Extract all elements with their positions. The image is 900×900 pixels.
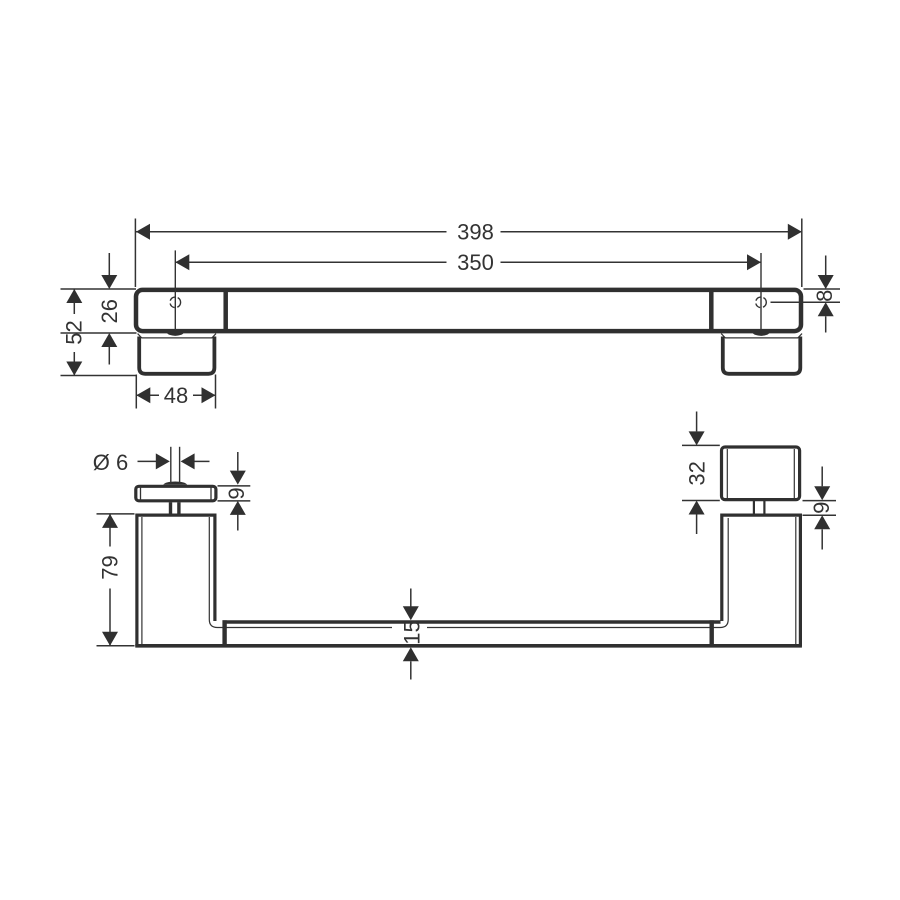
- svg-text:350: 350: [457, 250, 494, 275]
- svg-text:79: 79: [98, 555, 123, 579]
- svg-text:26: 26: [97, 299, 122, 323]
- svg-text:9: 9: [224, 487, 249, 499]
- svg-text:52: 52: [62, 320, 87, 344]
- svg-text:8: 8: [812, 290, 837, 302]
- svg-text:15: 15: [400, 620, 425, 644]
- svg-text:9: 9: [809, 502, 834, 514]
- svg-text:48: 48: [164, 383, 188, 408]
- svg-text:398: 398: [457, 220, 494, 245]
- svg-text:Ø 6: Ø 6: [93, 450, 128, 475]
- svg-text:32: 32: [685, 461, 710, 485]
